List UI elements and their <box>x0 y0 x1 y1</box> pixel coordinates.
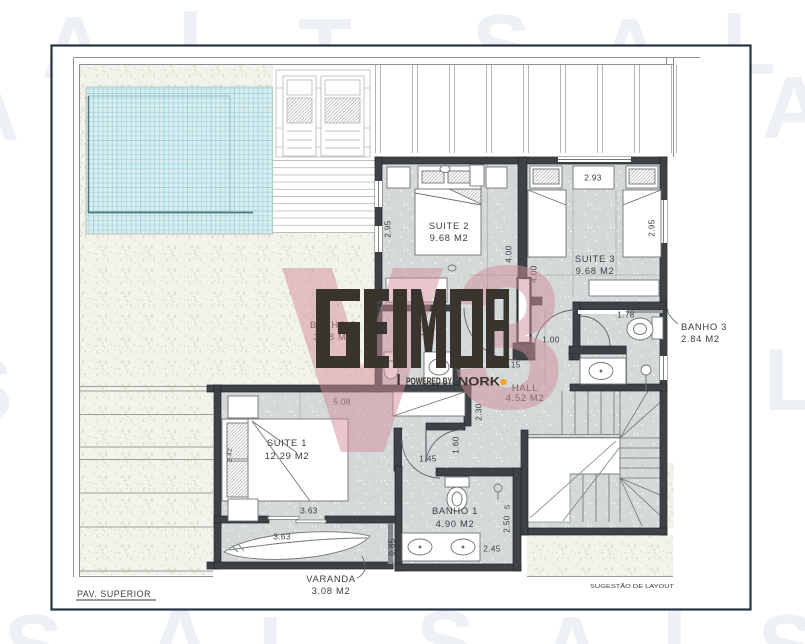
svg-text:2.95: 2.95 <box>384 220 393 238</box>
svg-text:VARANDA: VARANDA <box>306 573 356 584</box>
svg-text:3.63: 3.63 <box>273 533 291 542</box>
svg-text:2.42: 2.42 <box>227 448 234 462</box>
svg-text:A: A <box>0 60 20 159</box>
svg-text:3: 3 <box>452 223 566 452</box>
svg-text:0.85: 0.85 <box>388 538 397 556</box>
svg-text:2.84 M2: 2.84 M2 <box>681 333 720 344</box>
svg-text:3.08 M2: 3.08 M2 <box>312 585 351 596</box>
svg-text:2.45: 2.45 <box>483 545 501 554</box>
svg-text:SUITE 3: SUITE 3 <box>575 253 615 264</box>
svg-text:POWERED BY: POWERED BY <box>406 377 452 388</box>
svg-text:2.93: 2.93 <box>584 174 602 183</box>
svg-text:1.78: 1.78 <box>617 311 635 320</box>
svg-text:3.63: 3.63 <box>300 507 318 516</box>
svg-text:2.95: 2.95 <box>648 219 657 237</box>
svg-text:4.90 M2: 4.90 M2 <box>436 518 475 529</box>
svg-text:SUGESTÃO DE LAYOUT: SUGESTÃO DE LAYOUT <box>590 583 675 590</box>
svg-text:2.50: 2.50 <box>503 515 512 533</box>
svg-text:SUITE 1: SUITE 1 <box>267 437 307 448</box>
svg-text:PAV. SUPERIOR: PAV. SUPERIOR <box>77 589 151 599</box>
svg-text:S: S <box>505 504 512 509</box>
svg-text:BANHO 1: BANHO 1 <box>432 505 478 516</box>
svg-text:BANHO 3: BANHO 3 <box>681 321 727 332</box>
svg-text:S: S <box>758 596 805 644</box>
svg-text:1.45: 1.45 <box>419 455 437 464</box>
svg-text:S: S <box>0 340 13 439</box>
svg-text:NORK: NORK <box>458 375 500 389</box>
svg-text:9.68 M2: 9.68 M2 <box>576 265 615 276</box>
svg-text:A: A <box>762 58 805 157</box>
svg-text:12.29 M2: 12.29 M2 <box>265 450 310 461</box>
svg-text:L: L <box>764 330 805 429</box>
